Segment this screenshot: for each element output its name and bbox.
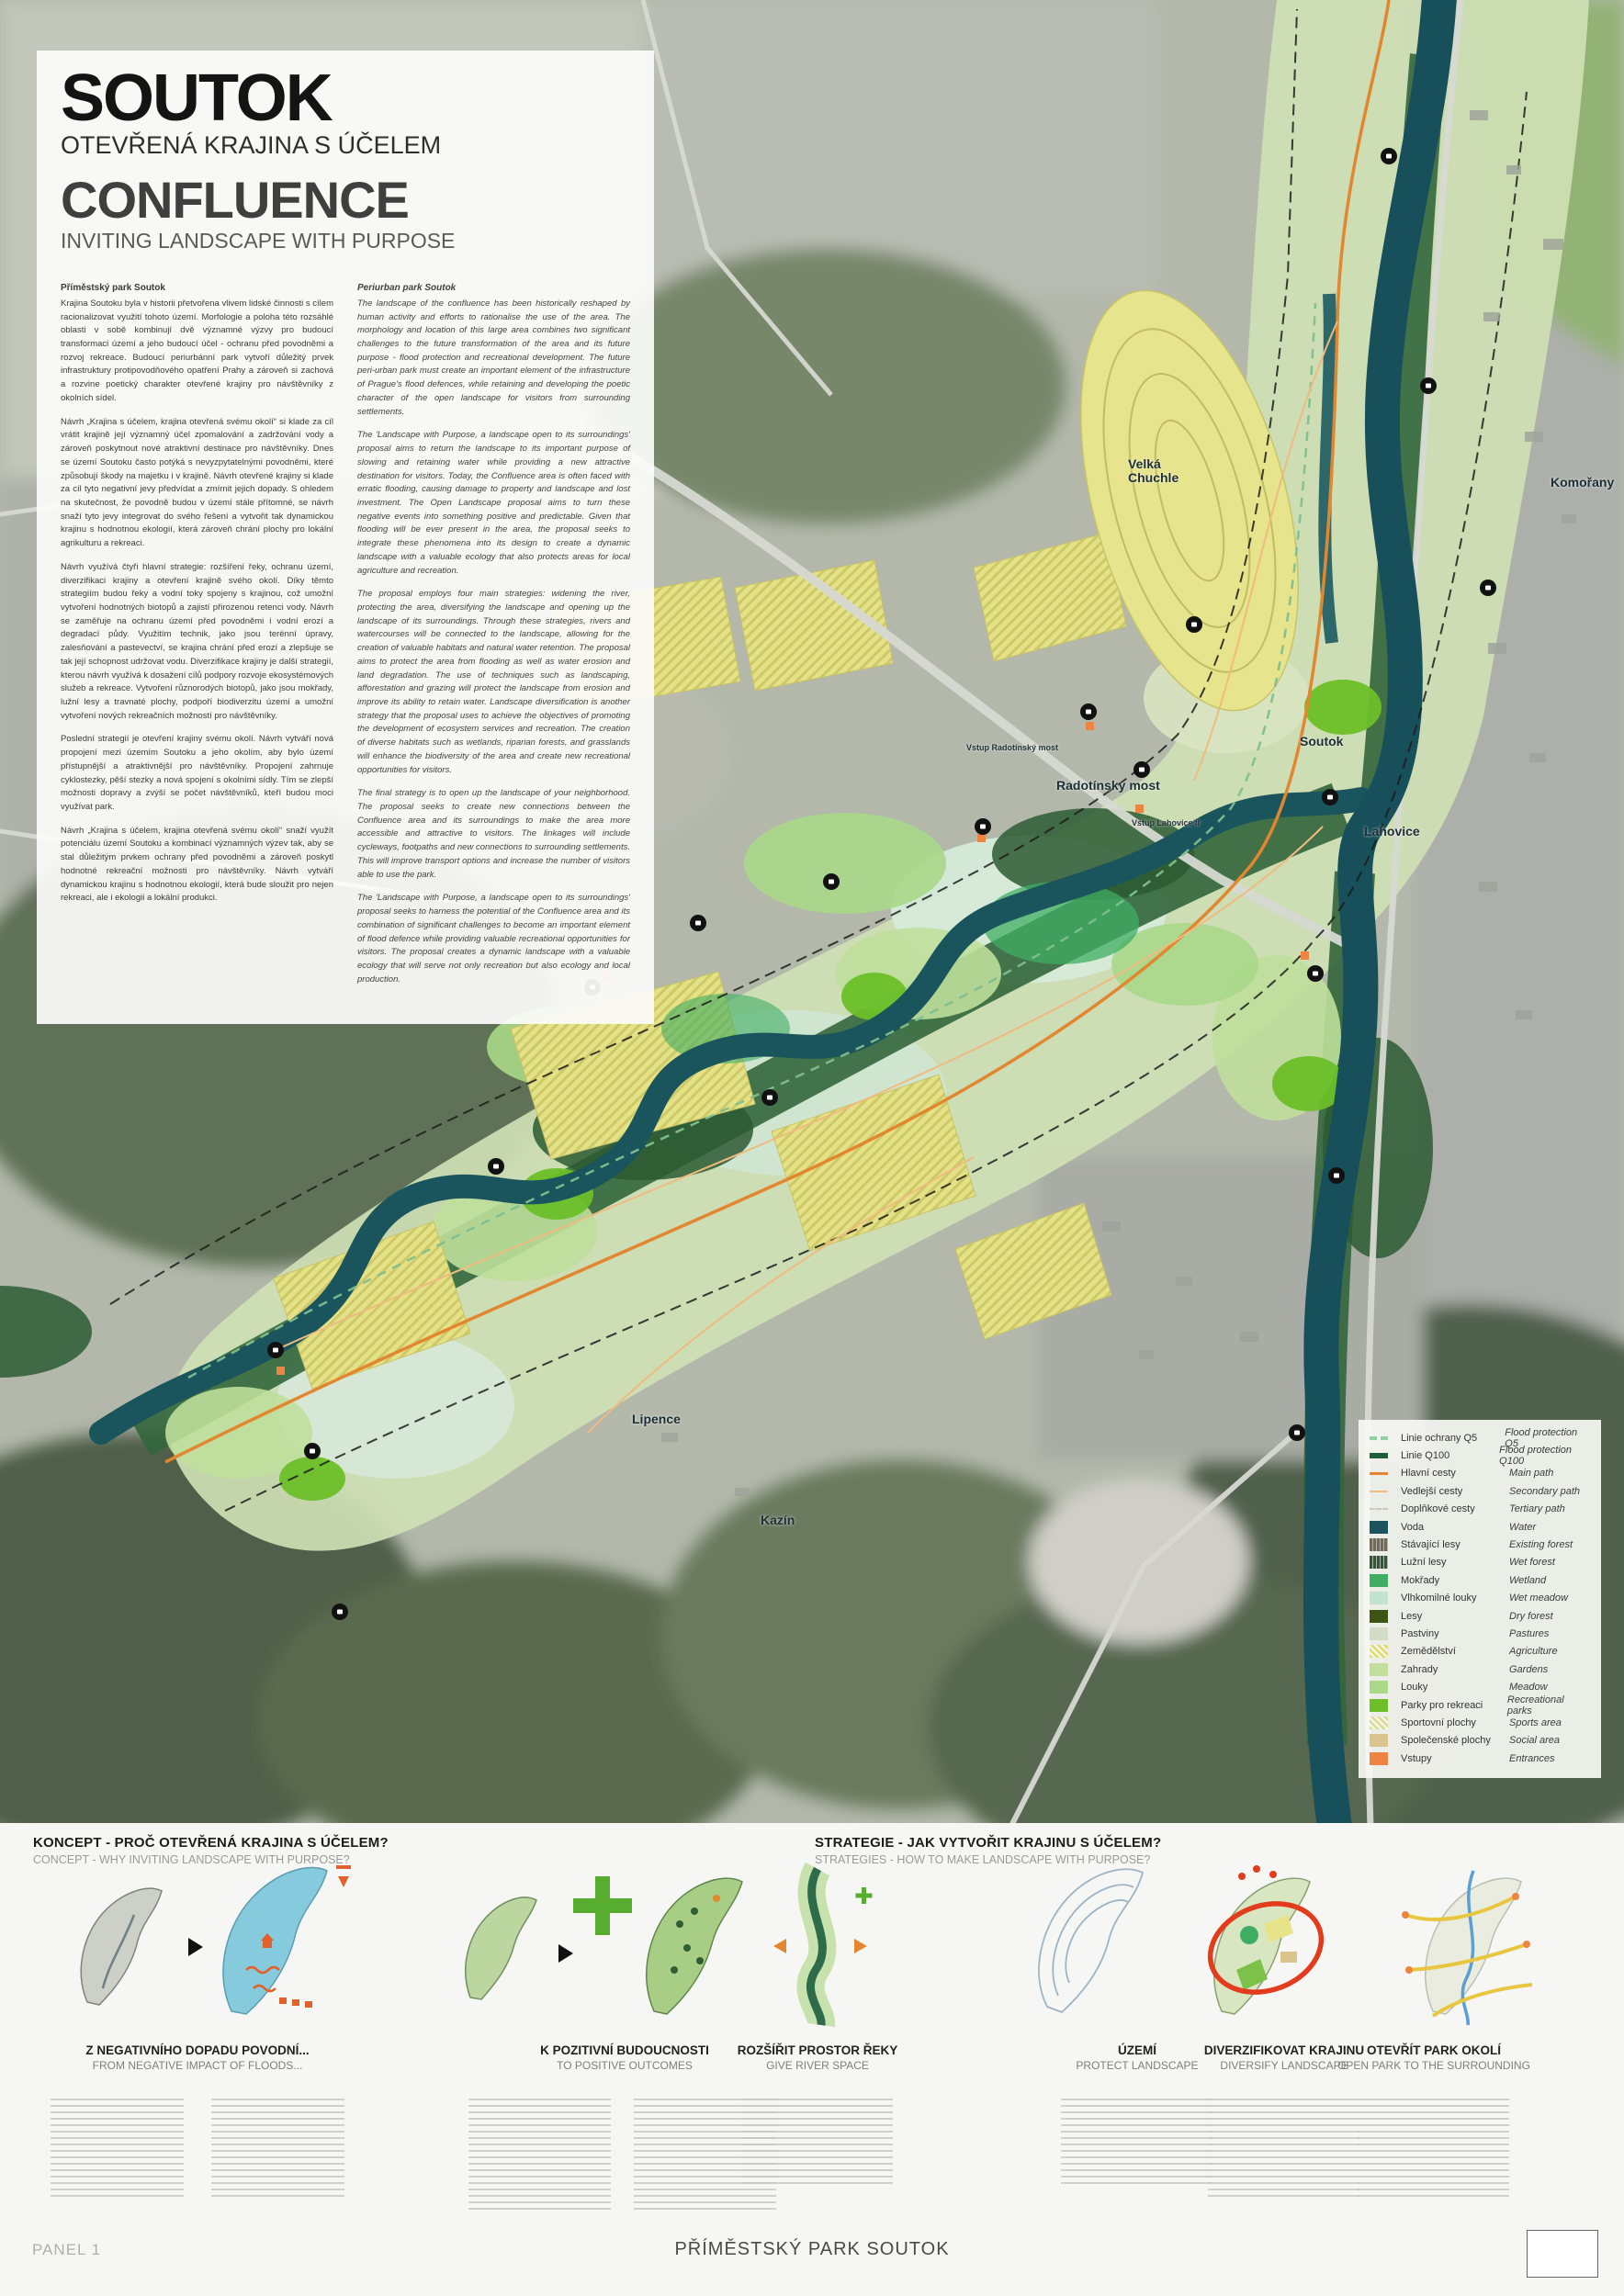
intro-paragraph: Návrh „Krajina s účelem, krajina otevřen… xyxy=(61,825,333,906)
diagram-floods-before-icon xyxy=(81,1888,162,2005)
concept-strategy-band: KONCEPT - PROČ OTEVŘENÁ KRAJINA S ÚČELEM… xyxy=(0,1823,1624,2296)
fine-print-block xyxy=(741,2099,893,2186)
legend-swatch xyxy=(1370,1716,1388,1729)
map-legend: Linie ochrany Q5Flood protection Q5 Lini… xyxy=(1359,1420,1601,1778)
panel-subtitle-en: INVITING LANDSCAPE WITH PURPOSE xyxy=(61,229,630,253)
legend-swatch xyxy=(1370,1538,1388,1551)
legend-swatch xyxy=(1370,1627,1388,1640)
map-label-radotinsky-most: Radotínský most xyxy=(1056,779,1160,793)
intro-paragraph: The final strategy is to open up the lan… xyxy=(357,787,630,882)
legend-item: Vedlejší cestySecondary path xyxy=(1370,1482,1590,1500)
fine-print-block xyxy=(1358,2099,1509,2200)
map-label-komorany: Komořany xyxy=(1551,476,1614,490)
diagram-protect-landscape-icon xyxy=(1039,1869,1143,2012)
legend-swatch xyxy=(1370,1663,1388,1676)
map-label-vstup-radotinsky-most: Vstup Radotínský most xyxy=(966,744,1058,752)
plus-icon xyxy=(573,1876,632,1935)
masterplan-map: Velká Chuchle Komořany Soutok Lahovice R… xyxy=(0,0,1624,1828)
panel-subtitle-cs: OTEVŘENÁ KRAJINA S ÚČELEM xyxy=(61,131,630,160)
legend-item: Sportovní plochySports area xyxy=(1370,1714,1590,1731)
diagram-diversify-icon xyxy=(1198,1865,1334,2014)
map-label-soutok: Soutok xyxy=(1300,735,1343,748)
diagram-title-open-park: OTEVŘÍT PARK OKOLÍ OPEN PARK TO THE SURR… xyxy=(1287,2043,1581,2072)
legend-item: PastvinyPastures xyxy=(1370,1625,1590,1642)
diagram-positive-before-icon xyxy=(466,1897,536,1999)
legend-swatch xyxy=(1370,1436,1388,1440)
intro-text-english: Periurban park Soutok The landscape of t… xyxy=(357,281,630,996)
fine-print-block xyxy=(1208,2099,1359,2200)
diagram-title-floods: Z NEGATIVNÍHO DOPADU POVODNÍ... FROM NEG… xyxy=(51,2043,344,2072)
panel-title-en: CONFLUENCE xyxy=(61,174,630,226)
concept-heading-cs: KONCEPT - PROČ OTEVŘENÁ KRAJINA S ÚČELEM… xyxy=(33,1835,389,1851)
legend-item: LesyDry forest xyxy=(1370,1607,1590,1625)
intro-paragraph: The landscape of the confluence has been… xyxy=(357,298,630,419)
intro-paragraph: The 'Landscape with Purpose, a landscape… xyxy=(357,892,630,986)
intro-heading-cs: Příměstský park Soutok xyxy=(61,281,333,296)
legend-item: ZemědělstvíAgriculture xyxy=(1370,1643,1590,1660)
map-label-lahovice: Lahovice xyxy=(1364,825,1420,838)
legend-item: Lužní lesyWet forest xyxy=(1370,1554,1590,1571)
map-label-velka-chuchle: Velká Chuchle xyxy=(1128,457,1205,484)
map-label-kazin: Kazín xyxy=(761,1514,795,1527)
stamp-box xyxy=(1527,2230,1598,2278)
presentation-panel: Velká Chuchle Komořany Soutok Lahovice R… xyxy=(0,0,1624,2296)
intro-paragraph: Návrh využívá čtyři hlavní strategie: ro… xyxy=(61,561,333,724)
project-title-label: PŘÍMĚSTSKÝ PARK SOUTOK xyxy=(0,2239,1624,2260)
panel-title-cs: SOUTOK xyxy=(61,67,630,129)
legend-item: Vlhkomilné loukyWet meadow xyxy=(1370,1590,1590,1607)
legend-swatch xyxy=(1370,1491,1388,1492)
legend-swatch xyxy=(1370,1592,1388,1604)
legend-swatch xyxy=(1370,1610,1388,1623)
legend-item: Doplňkové cestyTertiary path xyxy=(1370,1501,1590,1518)
diagram-floods-after-icon xyxy=(223,1865,351,2014)
intro-paragraph: The proposal employs four main strategie… xyxy=(357,588,630,777)
legend-item: VstupyEntrances xyxy=(1370,1750,1590,1767)
intro-paragraph: Poslední strategií je otevření krajiny s… xyxy=(61,733,333,814)
legend-item: MokřadyWetland xyxy=(1370,1571,1590,1589)
legend-swatch xyxy=(1370,1645,1388,1658)
title-card: SOUTOK OTEVŘENÁ KRAJINA S ÚČELEM CONFLUE… xyxy=(37,51,654,1024)
legend-swatch xyxy=(1370,1734,1388,1747)
diagram-open-park-icon xyxy=(1402,1871,1532,2025)
strategy-heading-cs: STRATEGIE - JAK VYTVOŘIT KRAJINU S ÚČELE… xyxy=(815,1835,1161,1851)
legend-swatch xyxy=(1370,1453,1388,1458)
diagram-river-space-icon xyxy=(773,1869,873,2025)
fine-print-block xyxy=(468,2099,611,2213)
legend-swatch xyxy=(1370,1472,1388,1475)
intro-heading-en: Periurban park Soutok xyxy=(357,281,630,296)
legend-item: Linie Q100Flood protection Q100 xyxy=(1370,1446,1590,1464)
legend-item: ZahradyGardens xyxy=(1370,1660,1590,1678)
arrow-right-icon xyxy=(558,1944,573,1963)
legend-swatch xyxy=(1370,1699,1388,1712)
legend-swatch xyxy=(1370,1574,1388,1587)
intro-text-czech: Příměstský park Soutok Krajina Soutoku b… xyxy=(61,281,333,996)
intro-paragraph: Krajina Soutoku byla v historii přetvoře… xyxy=(61,298,333,406)
diagram-positive-after-icon xyxy=(647,1878,742,2014)
legend-swatch xyxy=(1370,1521,1388,1534)
fine-print-block xyxy=(51,2099,184,2200)
map-label-lipence: Lipence xyxy=(632,1412,681,1426)
legend-swatch xyxy=(1370,1752,1388,1765)
legend-item: Společenské plochySocial area xyxy=(1370,1732,1590,1750)
diagram-title-river-space: ROZŠÍŘIT PROSTOR ŘEKY GIVE RIVER SPACE xyxy=(671,2043,964,2072)
legend-swatch xyxy=(1370,1508,1388,1510)
fine-print-block xyxy=(1061,2099,1212,2186)
fine-print-block xyxy=(211,2099,344,2200)
arrow-right-icon xyxy=(188,1938,203,1956)
map-label-vstup-lahovice: Vstup Lahovice II xyxy=(1132,819,1200,827)
legend-swatch xyxy=(1370,1681,1388,1694)
concept-diagrams-graphic xyxy=(0,1860,1624,2034)
legend-item: Hlavní cestyMain path xyxy=(1370,1465,1590,1482)
intro-paragraph: Návrh „Krajina s účelem, krajina otevřen… xyxy=(61,416,333,551)
intro-paragraph: The 'Landscape with Purpose, a landscape… xyxy=(357,429,630,578)
legend-swatch xyxy=(1370,1556,1388,1569)
legend-item: Stávající lesyExisting forest xyxy=(1370,1536,1590,1553)
legend-item: VodaWater xyxy=(1370,1518,1590,1536)
legend-item: Parky pro rekreaciRecreational parks xyxy=(1370,1696,1590,1714)
